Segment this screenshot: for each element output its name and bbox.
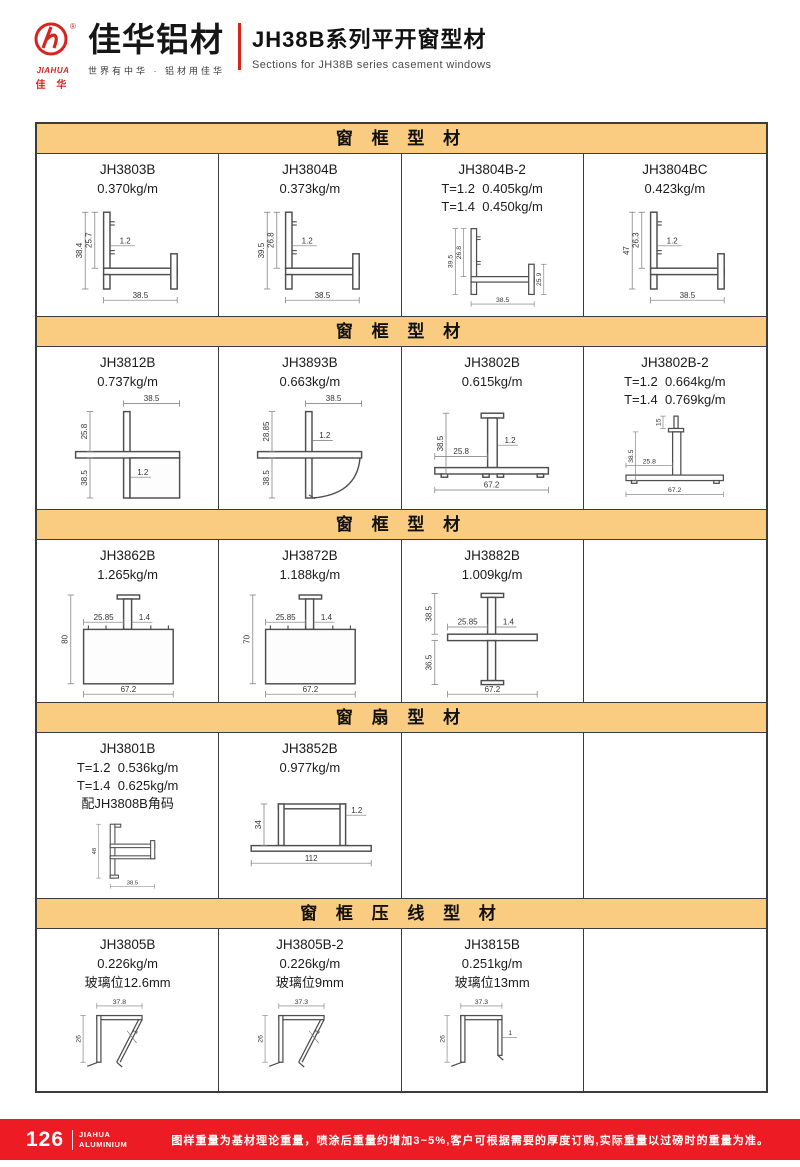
profile-spec: T=1.2 0.536kg/m <box>37 759 218 777</box>
profile-cell-jh3804b-2: JH3804B-2T=1.2 0.405kg/mT=1.4 0.450kg/m3… <box>402 154 584 316</box>
section-row: JH3803B0.370kg/m38.425.71.238.5JH3804B0.… <box>37 154 766 316</box>
profile-drawing: 39.526.825.938.5 <box>432 219 552 315</box>
logo-mark: JIAHUA <box>37 66 70 75</box>
svg-text:1: 1 <box>132 1028 140 1035</box>
profile-spec: T=1.4 0.450kg/m <box>402 198 583 216</box>
profile-spec: T=1.2 0.664kg/m <box>584 373 766 391</box>
catalog-page: ® JIAHUA 佳 华 佳华铝材 世界有中华 · 铝材用佳华 JH38B系列平… <box>0 0 800 1167</box>
section-row: JH3805B0.226kg/m玻璃位12.6mm37.8261JH3805B-… <box>37 929 766 1091</box>
profile-drawing: 7025.851.467.2 <box>240 587 380 699</box>
svg-text:®: ® <box>70 22 76 31</box>
svg-text:38.5: 38.5 <box>127 881 138 887</box>
svg-text:26.8: 26.8 <box>456 246 463 260</box>
footer-brand-line1: JIAHUA <box>79 1130 127 1139</box>
section-title: 窗 框 型 材 <box>37 509 766 540</box>
section-row: JH3801BT=1.2 0.536kg/mT=1.4 0.625kg/m配JH… <box>37 733 766 898</box>
profile-table: 窗 框 型 材JH3803B0.370kg/m38.425.71.238.5JH… <box>35 122 768 1093</box>
profile-cell-jh3804bc: JH3804BC0.423kg/m4726.31.238.5 <box>584 154 766 316</box>
svg-text:38.5: 38.5 <box>262 470 271 486</box>
svg-text:1.2: 1.2 <box>505 436 517 445</box>
svg-text:38.5: 38.5 <box>425 606 434 622</box>
profile-spec: 0.226kg/m <box>37 955 218 973</box>
svg-text:47: 47 <box>622 246 631 255</box>
profile-drawing: 38.525.851.436.567.2 <box>422 587 562 699</box>
svg-text:67.2: 67.2 <box>302 685 318 694</box>
svg-text:38.5: 38.5 <box>79 470 88 486</box>
svg-text:34: 34 <box>254 820 263 829</box>
profile-spec: 0.615kg/m <box>402 373 583 391</box>
section-title: 窗 扇 型 材 <box>37 702 766 733</box>
profile-drawing: 1538.525.867.2 <box>615 412 735 508</box>
profile-cell-empty <box>584 929 766 1091</box>
profile-code: JH3812B <box>37 354 218 373</box>
profile-code: JH3805B <box>37 936 218 955</box>
profile-code: JH3805B-2 <box>219 936 400 955</box>
profile-code: JH3804B <box>219 161 400 180</box>
profile-cell-jh3872b: JH3872B1.188kg/m7025.851.467.2 <box>219 540 401 702</box>
svg-text:38.4: 38.4 <box>75 242 84 258</box>
page-number: 126 <box>26 1128 64 1152</box>
profile-spec: T=1.2 0.405kg/m <box>402 180 583 198</box>
profile-cell-jh3804b: JH3804B0.373kg/m39.526.81.238.5 <box>219 154 401 316</box>
page-title: JH38B系列平开窗型材 <box>252 22 491 54</box>
svg-text:1.2: 1.2 <box>302 236 314 245</box>
profile-cell-jh3803b: JH3803B0.370kg/m38.425.71.238.5 <box>37 154 219 316</box>
svg-text:37.3: 37.3 <box>475 999 489 1006</box>
profile-drawing: 37.3261 <box>432 995 552 1091</box>
footer-brand-line2: ALUMINIUM <box>79 1140 127 1149</box>
svg-text:25.8: 25.8 <box>642 459 656 466</box>
svg-text:67.2: 67.2 <box>485 685 501 694</box>
profile-code: JH3882B <box>402 547 583 566</box>
svg-text:38.5: 38.5 <box>132 291 148 300</box>
profile-spec: T=1.4 0.769kg/m <box>584 391 766 409</box>
svg-text:38.5: 38.5 <box>326 394 342 403</box>
profile-code: JH3802B <box>402 354 583 373</box>
profile-cell-jh3805b: JH3805B0.226kg/m玻璃位12.6mm37.8261 <box>37 929 219 1091</box>
profile-code: JH3804BC <box>584 161 766 180</box>
profile-code: JH3801B <box>37 740 218 759</box>
svg-text:25.7: 25.7 <box>84 232 93 248</box>
logo-emblem-icon: ® <box>30 20 76 65</box>
svg-text:25.9: 25.9 <box>536 273 543 287</box>
svg-text:28.85: 28.85 <box>262 421 271 442</box>
profile-drawing: 4726.31.238.5 <box>605 201 745 313</box>
profile-drawing: 341.2112 <box>240 780 380 892</box>
svg-text:1.4: 1.4 <box>138 613 150 622</box>
logo-mark-sub: 佳 华 <box>36 76 71 91</box>
svg-text:67.2: 67.2 <box>668 487 682 494</box>
profile-cell-empty <box>584 540 766 702</box>
svg-text:1.4: 1.4 <box>321 613 333 622</box>
svg-text:48: 48 <box>92 848 98 855</box>
profile-spec: 0.226kg/m <box>219 955 400 973</box>
svg-text:67.2: 67.2 <box>484 481 500 490</box>
page-header: ® JIAHUA 佳 华 佳华铝材 世界有中华 · 铝材用佳华 JH38B系列平… <box>0 0 800 91</box>
profile-drawing: 39.526.81.238.5 <box>240 201 380 313</box>
profile-code: JH3802B-2 <box>584 354 766 373</box>
profile-spec: 0.737kg/m <box>37 373 218 391</box>
profile-drawing: 38.525.838.51.2 <box>58 394 198 506</box>
svg-text:25.8: 25.8 <box>454 447 470 456</box>
profile-spec: 玻璃位13mm <box>402 974 583 992</box>
profile-cell-empty <box>402 733 584 898</box>
profile-drawing: 38.425.71.238.5 <box>58 201 198 313</box>
profile-drawing: 8025.851.467.2 <box>58 587 198 699</box>
profile-cell-jh3815b: JH3815B0.251kg/m玻璃位13mm37.3261 <box>402 929 584 1091</box>
svg-text:1.2: 1.2 <box>119 236 131 245</box>
svg-text:26: 26 <box>75 1035 82 1043</box>
svg-text:37.8: 37.8 <box>112 999 126 1006</box>
svg-text:38.5: 38.5 <box>143 394 159 403</box>
jiahua-logo: ® JIAHUA 佳 华 <box>26 20 80 91</box>
svg-text:1: 1 <box>508 1029 512 1036</box>
footer-note: 图样重量为基材理论重量，喷涂后重量约增加3~5%,客户可根据需要的厚度订购,实际… <box>171 1132 769 1148</box>
svg-text:26: 26 <box>439 1035 446 1043</box>
profile-spec: 0.977kg/m <box>219 759 400 777</box>
profile-spec: 玻璃位9mm <box>219 974 400 992</box>
profile-drawing: 37.3261 <box>250 995 370 1091</box>
section-row: JH3812B0.737kg/m38.525.838.51.2JH3893B0.… <box>37 347 766 509</box>
svg-text:15: 15 <box>655 419 662 427</box>
profile-drawing: 37.8261 <box>68 995 188 1091</box>
page-subtitle: Sections for JH38B series casement windo… <box>252 59 491 71</box>
svg-text:25.85: 25.85 <box>275 613 296 622</box>
svg-text:1.4: 1.4 <box>503 618 515 627</box>
profile-cell-jh3801b: JH3801BT=1.2 0.536kg/mT=1.4 0.625kg/m配JH… <box>37 733 219 898</box>
profile-code: JH3862B <box>37 547 218 566</box>
profile-spec: T=1.4 0.625kg/m <box>37 777 218 795</box>
svg-text:38.5: 38.5 <box>628 450 635 464</box>
profile-cell-jh3893b: JH3893B0.663kg/m38.528.8538.51.2 <box>219 347 401 509</box>
profile-cell-empty <box>584 733 766 898</box>
profile-drawing: 38.525.81.267.2 <box>422 394 562 506</box>
svg-text:1.2: 1.2 <box>319 431 331 440</box>
brand-name: 佳华铝材 <box>88 23 225 58</box>
profile-cell-jh3862b: JH3862B1.265kg/m8025.851.467.2 <box>37 540 219 702</box>
svg-text:26: 26 <box>257 1035 264 1043</box>
svg-text:112: 112 <box>305 854 318 863</box>
brand-block: 佳华铝材 世界有中华 · 铝材用佳华 <box>88 20 225 77</box>
profile-cell-jh3852b: JH3852B0.977kg/m341.2112 <box>219 733 401 898</box>
svg-text:26.3: 26.3 <box>631 232 640 248</box>
svg-text:38.5: 38.5 <box>314 291 330 300</box>
header-divider <box>238 23 241 70</box>
profile-cell-jh3812b: JH3812B0.737kg/m38.525.838.51.2 <box>37 347 219 509</box>
svg-text:38.5: 38.5 <box>436 435 445 451</box>
section-title: 窗 框 型 材 <box>37 124 766 154</box>
profile-drawing: 4838.5 <box>76 816 179 898</box>
section-title: 窗 框 型 材 <box>37 316 766 347</box>
profile-spec: 配JH3808B角码 <box>37 795 218 813</box>
profile-spec: 0.370kg/m <box>37 180 218 198</box>
profile-spec: 0.423kg/m <box>584 180 766 198</box>
svg-text:39.5: 39.5 <box>257 242 266 258</box>
profile-code: JH3872B <box>219 547 400 566</box>
profile-spec: 玻璃位12.6mm <box>37 974 218 992</box>
svg-text:26.8: 26.8 <box>266 232 275 248</box>
profile-cell-jh3802b: JH3802B0.615kg/m38.525.81.267.2 <box>402 347 584 509</box>
svg-text:38.5: 38.5 <box>679 291 695 300</box>
svg-text:37.3: 37.3 <box>295 999 309 1006</box>
profile-spec: 1.188kg/m <box>219 566 400 584</box>
profile-drawing: 38.528.8538.51.2 <box>240 394 380 506</box>
svg-text:36.5: 36.5 <box>425 654 434 670</box>
svg-text:1: 1 <box>314 1028 322 1035</box>
brand-tagline: 世界有中华 · 铝材用佳华 <box>88 64 225 77</box>
svg-text:67.2: 67.2 <box>120 685 136 694</box>
footer-divider <box>72 1130 73 1150</box>
footer-brand: JIAHUA ALUMINIUM <box>79 1130 127 1149</box>
profile-cell-jh3882b: JH3882B1.009kg/m38.525.851.436.567.2 <box>402 540 584 702</box>
profile-cell-jh3802b-2: JH3802B-2T=1.2 0.664kg/mT=1.4 0.769kg/m1… <box>584 347 766 509</box>
profile-code: JH3852B <box>219 740 400 759</box>
title-block: JH38B系列平开窗型材 Sections for JH38B series c… <box>252 20 491 71</box>
profile-spec: 0.663kg/m <box>219 373 400 391</box>
profile-code: JH3804B-2 <box>402 161 583 180</box>
svg-text:1.2: 1.2 <box>351 806 363 815</box>
svg-text:70: 70 <box>242 634 251 643</box>
svg-text:39.5: 39.5 <box>448 255 455 269</box>
profile-code: JH3803B <box>37 161 218 180</box>
profile-spec: 1.265kg/m <box>37 566 218 584</box>
page-footer: 126 JIAHUA ALUMINIUM 图样重量为基材理论重量，喷涂后重量约增… <box>0 1119 800 1160</box>
svg-text:25.8: 25.8 <box>79 423 88 439</box>
section-title: 窗 框 压 线 型 材 <box>37 898 766 929</box>
svg-text:38.5: 38.5 <box>496 297 510 304</box>
profile-spec: 0.251kg/m <box>402 955 583 973</box>
svg-text:25.85: 25.85 <box>93 613 114 622</box>
svg-text:1.2: 1.2 <box>137 468 149 477</box>
profile-code: JH3893B <box>219 354 400 373</box>
profile-spec: 1.009kg/m <box>402 566 583 584</box>
profile-cell-jh3805b-2: JH3805B-20.226kg/m玻璃位9mm37.3261 <box>219 929 401 1091</box>
profile-code: JH3815B <box>402 936 583 955</box>
svg-text:25.85: 25.85 <box>458 618 479 627</box>
svg-text:1.2: 1.2 <box>667 236 679 245</box>
profile-spec: 0.373kg/m <box>219 180 400 198</box>
svg-text:80: 80 <box>60 634 69 643</box>
section-row: JH3862B1.265kg/m8025.851.467.2JH3872B1.1… <box>37 540 766 702</box>
